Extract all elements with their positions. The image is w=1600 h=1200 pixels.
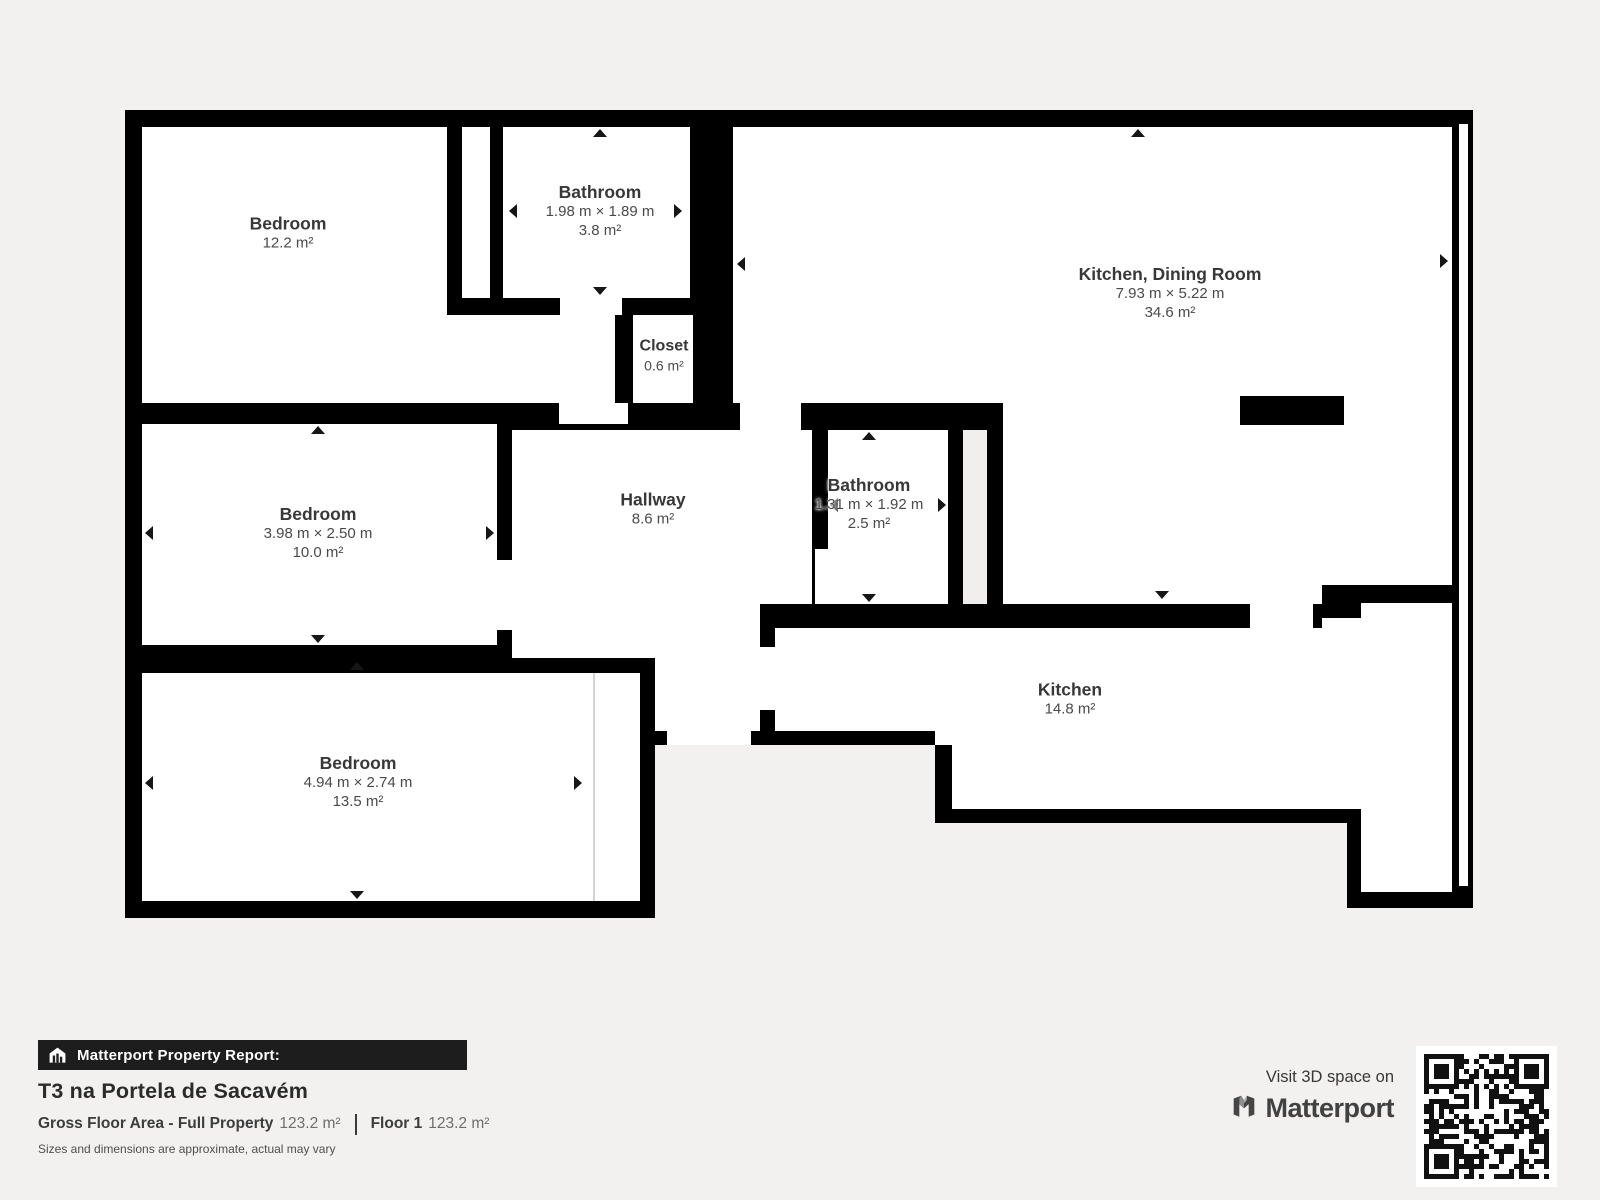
room-name: Bedroom xyxy=(264,504,373,524)
door-bedroom-2 xyxy=(497,560,512,630)
disclaimer-text: Sizes and dimensions are approximate, ac… xyxy=(38,1142,335,1156)
room-area: 13.5 m² xyxy=(304,792,413,811)
door-hall-to-kitchen-dining xyxy=(740,403,801,430)
matterport-logo-icon xyxy=(1229,1091,1259,1126)
room-name: Kitchen xyxy=(1038,680,1102,700)
room-area: 14.8 m² xyxy=(1038,700,1102,719)
room-area: 8.6 m² xyxy=(620,510,685,529)
room-label-bedroom-3: Bedroom 4.94 m × 2.74 m 13.5 m² xyxy=(304,753,413,811)
visit-3d-text: Visit 3D space on xyxy=(1266,1068,1394,1087)
room-area: 3.8 m² xyxy=(546,221,655,240)
floor-value: 123.2 m² xyxy=(428,1115,489,1133)
gfa-label: Gross Floor Area - Full Property xyxy=(38,1115,273,1133)
room-name: Kitchen, Dining Room xyxy=(1079,264,1262,284)
report-header-bar: Matterport Property Report: xyxy=(38,1040,467,1070)
door-kitchen xyxy=(1250,604,1313,628)
room-label-kitchen: Kitchen 14.8 m² xyxy=(1038,680,1102,719)
door-bathroom-2 xyxy=(815,549,828,604)
matterport-promo: Visit 3D space on Matterport xyxy=(1184,1068,1394,1126)
room-label-bathroom-2: Bathroom 1.31 m × 1.92 m 2.5 m² xyxy=(815,475,924,533)
room-name: Bathroom xyxy=(815,475,924,495)
room-label-bedroom-2: Bedroom 3.98 m × 2.50 m 10.0 m² xyxy=(264,504,373,562)
room-dims: 7.93 m × 5.22 m xyxy=(1079,284,1262,303)
room-dims: 4.94 m × 2.74 m xyxy=(304,773,413,792)
door-bathroom-1 xyxy=(560,298,622,315)
door-hall-to-vestibule xyxy=(760,647,775,710)
room-area: 34.6 m² xyxy=(1079,303,1262,322)
room-dims: 1.98 m × 1.89 m xyxy=(546,202,655,221)
room-area: 0.6 m² xyxy=(640,357,689,376)
room-area: 10.0 m² xyxy=(264,543,373,562)
matterport-wordmark: Matterport xyxy=(1266,1093,1395,1124)
qr-code xyxy=(1416,1046,1557,1187)
room-area: 2.5 m² xyxy=(815,514,924,533)
room-name: Bathroom xyxy=(546,182,655,202)
room-dims: 3.98 m × 2.50 m xyxy=(264,524,373,543)
report-stats: Gross Floor Area - Full Property 123.2 m… xyxy=(38,1112,489,1136)
entry-door xyxy=(667,731,751,745)
wardrobe-niche xyxy=(462,127,490,298)
room-bedroom-1 xyxy=(142,127,447,403)
gfa-value: 123.2 m² xyxy=(279,1115,340,1133)
floor-plan xyxy=(0,0,1600,1040)
room-name: Bedroom xyxy=(304,753,413,773)
report-bar-label: Matterport Property Report: xyxy=(77,1047,280,1064)
kitchen-counter-fixture xyxy=(1240,396,1344,425)
room-name: Hallway xyxy=(620,490,685,510)
room-label-bedroom-1: Bedroom 12.2 m² xyxy=(250,214,327,253)
floor-label: Floor 1 xyxy=(371,1115,423,1133)
room-area: 12.2 m² xyxy=(250,234,327,253)
room-bedroom-1-strip xyxy=(447,315,615,403)
property-title: T3 na Portela de Sacavém xyxy=(38,1079,308,1104)
house-icon xyxy=(48,1046,67,1065)
matterport-brand: Matterport xyxy=(1229,1091,1395,1126)
room-label-kitchen-dining: Kitchen, Dining Room 7.93 m × 5.22 m 34.… xyxy=(1079,264,1262,322)
room-label-hallway: Hallway 8.6 m² xyxy=(620,490,685,529)
room-label-bathroom-1: Bathroom 1.98 m × 1.89 m 3.8 m² xyxy=(546,182,655,240)
room-name: Bedroom xyxy=(250,214,327,234)
property-report-page: Bedroom 12.2 m² Bathroom 1.98 m × 1.89 m… xyxy=(0,0,1600,1200)
duct-shaft xyxy=(963,430,987,604)
door-hall-to-strip xyxy=(559,403,628,424)
room-dims: 1.31 m × 1.92 m xyxy=(815,495,924,514)
room-name: Closet xyxy=(640,337,689,357)
stats-divider xyxy=(355,1114,357,1135)
window-glass-right xyxy=(1459,124,1468,886)
room-label-closet: Closet 0.6 m² xyxy=(640,337,689,376)
